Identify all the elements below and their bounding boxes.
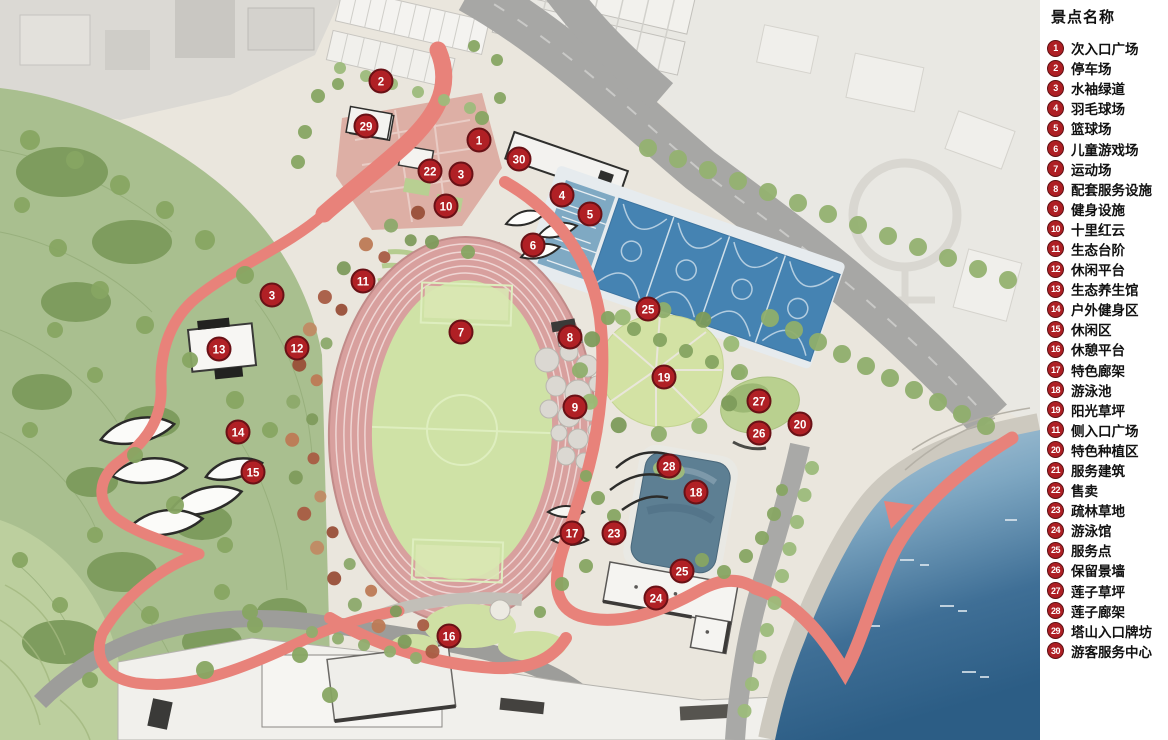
- map-marker-3: 3: [261, 284, 284, 307]
- map-marker-22: 22: [419, 160, 442, 183]
- legend-item: 18 游泳池: [1047, 380, 1167, 400]
- legend-item: 4 羽毛球场: [1047, 98, 1167, 118]
- legend-item-number: 4: [1047, 100, 1064, 117]
- legend-item-number: 17: [1047, 361, 1064, 378]
- legend-item-label: 莲子廊架: [1071, 601, 1125, 621]
- legend-item-number: 16: [1047, 341, 1064, 358]
- legend-item-label: 生态养生馆: [1071, 279, 1139, 299]
- svg-text:12: 12: [291, 343, 304, 355]
- svg-text:23: 23: [608, 528, 621, 540]
- svg-text:4: 4: [559, 190, 566, 202]
- legend-item-number: 24: [1047, 522, 1064, 539]
- legend-item: 28 莲子廊架: [1047, 601, 1167, 621]
- svg-text:10: 10: [440, 201, 453, 213]
- legend-item-number: 10: [1047, 220, 1064, 237]
- svg-text:1: 1: [476, 135, 483, 147]
- legend-item-label: 特色廊架: [1071, 360, 1125, 380]
- legend-item-label: 水袖绿道: [1071, 78, 1125, 98]
- map-marker-11: 11: [352, 270, 375, 293]
- legend-item-number: 1: [1047, 40, 1064, 57]
- svg-text:8: 8: [567, 332, 574, 344]
- svg-text:3: 3: [269, 290, 275, 302]
- legend-item-label: 休闲区: [1071, 319, 1112, 339]
- legend-item-label: 羽毛球场: [1071, 98, 1125, 118]
- svg-text:9: 9: [572, 402, 578, 414]
- legend-item-label: 篮球场: [1071, 118, 1112, 138]
- legend-item: 9 健身设施: [1047, 199, 1167, 219]
- legend-item: 11 侧入口广场: [1047, 420, 1167, 440]
- legend-item-number: 23: [1047, 502, 1064, 519]
- legend-item-number: 15: [1047, 321, 1064, 338]
- map-marker-25: 25: [671, 560, 694, 583]
- map-marker-24: 24: [645, 587, 668, 610]
- legend-item-label: 阳光草坪: [1071, 400, 1125, 420]
- legend-item-label: 休闲平台: [1071, 259, 1125, 279]
- map-marker-28: 28: [658, 455, 681, 478]
- legend-item: 8 配套服务设施: [1047, 179, 1167, 199]
- legend-item: 1 次入口广场: [1047, 38, 1167, 58]
- legend-item-number: 19: [1047, 401, 1064, 418]
- legend-item-label: 塔山入口牌坊: [1071, 621, 1152, 641]
- legend-item-label: 配套服务设施: [1071, 179, 1152, 199]
- legend-title: 景点名称: [1051, 6, 1167, 27]
- legend-item-number: 2: [1047, 60, 1064, 77]
- svg-text:28: 28: [663, 461, 676, 473]
- legend-item: 25 服务点: [1047, 540, 1167, 560]
- svg-text:3: 3: [458, 169, 464, 181]
- legend-item: 2 停车场: [1047, 58, 1167, 78]
- svg-text:25: 25: [642, 304, 655, 316]
- legend-item-number: 8: [1047, 180, 1064, 197]
- map-marker-25: 25: [637, 298, 660, 321]
- svg-text:18: 18: [690, 487, 703, 499]
- svg-text:17: 17: [566, 528, 579, 540]
- svg-text:14: 14: [232, 427, 245, 439]
- map-marker-1: 1: [468, 129, 491, 152]
- legend-item-number: 22: [1047, 482, 1064, 499]
- legend-item-number: 21: [1047, 462, 1064, 479]
- masterplan-map: 2291302234105611325781213192792014262815…: [0, 0, 1040, 740]
- legend-item-number: 26: [1047, 562, 1064, 579]
- map-marker-14: 14: [227, 421, 250, 444]
- map-marker-4: 4: [551, 184, 574, 207]
- legend-item-label: 运动场: [1071, 159, 1112, 179]
- svg-text:15: 15: [247, 467, 260, 479]
- map-marker-17: 17: [561, 522, 584, 545]
- map-marker-19: 19: [653, 366, 676, 389]
- legend-item-number: 3: [1047, 80, 1064, 97]
- legend-item-label: 莲子草坪: [1071, 581, 1125, 601]
- legend-item: 29 塔山入口牌坊: [1047, 621, 1167, 641]
- legend-item: 27 莲子草坪: [1047, 581, 1167, 601]
- legend-item: 11 生态台阶: [1047, 239, 1167, 259]
- masterplan-page: 2291302234105611325781213192792014262815…: [0, 0, 1168, 740]
- svg-text:13: 13: [213, 344, 226, 356]
- legend-item: 5 篮球场: [1047, 118, 1167, 138]
- legend-item: 20 特色种植区: [1047, 440, 1167, 460]
- legend-item: 13 生态养生馆: [1047, 279, 1167, 299]
- legend-item-label: 次入口广场: [1071, 38, 1139, 58]
- legend-item-label: 儿童游戏场: [1071, 139, 1139, 159]
- svg-text:6: 6: [530, 240, 536, 252]
- legend-item-label: 售卖: [1071, 480, 1098, 500]
- legend-item-label: 游泳馆: [1071, 520, 1112, 540]
- legend-item: 22 售卖: [1047, 480, 1167, 500]
- legend-item-label: 游泳池: [1071, 380, 1112, 400]
- legend-item-label: 健身设施: [1071, 199, 1125, 219]
- legend-item-label: 保留景墙: [1071, 560, 1125, 580]
- map-marker-7: 7: [450, 321, 473, 344]
- svg-text:19: 19: [658, 372, 671, 384]
- legend-item-label: 服务建筑: [1071, 460, 1125, 480]
- legend-item-number: 27: [1047, 582, 1064, 599]
- legend-item-number: 30: [1047, 642, 1064, 659]
- legend-list: 1 次入口广场 2 停车场 3 水袖绿道 4 羽毛球场 5 篮球场 6 儿童游戏…: [1047, 38, 1167, 661]
- svg-text:25: 25: [676, 566, 689, 578]
- map-marker-8: 8: [559, 326, 582, 349]
- legend-item-label: 特色种植区: [1071, 440, 1139, 460]
- map-marker-13: 13: [208, 338, 231, 361]
- legend-item-number: 6: [1047, 140, 1064, 157]
- map-marker-18: 18: [685, 481, 708, 504]
- map-marker-27: 27: [748, 390, 771, 413]
- legend-item: 26 保留景墙: [1047, 560, 1167, 580]
- legend-item-number: 11: [1047, 240, 1064, 257]
- legend-item-number: 13: [1047, 281, 1064, 298]
- legend-item: 10 十里红云: [1047, 219, 1167, 239]
- svg-text:29: 29: [360, 121, 373, 133]
- legend-item-label: 十里红云: [1071, 219, 1125, 239]
- legend-item: 12 休闲平台: [1047, 259, 1167, 279]
- legend-item: 21 服务建筑: [1047, 460, 1167, 480]
- svg-text:20: 20: [794, 419, 807, 431]
- legend-item-number: 5: [1047, 120, 1064, 137]
- map-marker-9: 9: [564, 396, 587, 419]
- legend-item: 24 游泳馆: [1047, 520, 1167, 540]
- svg-text:11: 11: [357, 276, 370, 288]
- svg-text:24: 24: [650, 593, 663, 605]
- legend-item: 17 特色廊架: [1047, 360, 1167, 380]
- legend-item: 15 休闲区: [1047, 319, 1167, 339]
- svg-text:30: 30: [513, 154, 526, 166]
- legend-item-number: 20: [1047, 441, 1064, 458]
- legend-item-number: 11: [1047, 421, 1064, 438]
- map-marker-12: 12: [286, 337, 309, 360]
- legend-panel: 景点名称 1 次入口广场 2 停车场 3 水袖绿道 4 羽毛球场 5 篮球场 6…: [1047, 4, 1167, 661]
- map-marker-26: 26: [748, 422, 771, 445]
- map-marker-30: 30: [508, 148, 531, 171]
- map-marker-2: 2: [370, 70, 393, 93]
- legend-item-number: 18: [1047, 381, 1064, 398]
- svg-text:27: 27: [753, 396, 766, 408]
- legend-item-label: 休憩平台: [1071, 339, 1125, 359]
- svg-text:22: 22: [424, 166, 437, 178]
- map-marker-16: 16: [438, 625, 461, 648]
- legend-item-label: 侧入口广场: [1071, 420, 1139, 440]
- legend-item: 30 游客服务中心: [1047, 641, 1167, 661]
- legend-item: 16 休憩平台: [1047, 339, 1167, 359]
- legend-item-number: 7: [1047, 160, 1064, 177]
- legend-item-number: 14: [1047, 301, 1064, 318]
- legend-item-number: 28: [1047, 602, 1064, 619]
- svg-text:16: 16: [443, 631, 456, 643]
- map-marker-10: 10: [435, 195, 458, 218]
- map-marker-5: 5: [579, 203, 602, 226]
- legend-item-number: 12: [1047, 261, 1064, 278]
- legend-item: 23 疏林草地: [1047, 500, 1167, 520]
- legend-item-label: 疏林草地: [1071, 500, 1125, 520]
- map-marker-29: 29: [355, 115, 378, 138]
- legend-item-number: 9: [1047, 200, 1064, 217]
- map-marker-20: 20: [789, 413, 812, 436]
- legend-item-number: 25: [1047, 542, 1064, 559]
- legend-item-number: 29: [1047, 622, 1064, 639]
- legend-item-label: 停车场: [1071, 58, 1112, 78]
- legend-item: 7 运动场: [1047, 159, 1167, 179]
- legend-item: 14 户外健身区: [1047, 299, 1167, 319]
- map-marker-23: 23: [603, 522, 626, 545]
- svg-text:2: 2: [378, 76, 384, 88]
- legend-item-label: 户外健身区: [1071, 299, 1139, 319]
- svg-text:26: 26: [753, 428, 766, 440]
- map-marker-3: 3: [450, 163, 473, 186]
- legend-item: 3 水袖绿道: [1047, 78, 1167, 98]
- legend-item: 19 阳光草坪: [1047, 400, 1167, 420]
- legend-item: 6 儿童游戏场: [1047, 138, 1167, 158]
- legend-item-label: 服务点: [1071, 540, 1112, 560]
- legend-item-label: 生态台阶: [1071, 239, 1125, 259]
- svg-text:7: 7: [458, 327, 464, 339]
- map-marker-15: 15: [242, 461, 265, 484]
- map-marker-6: 6: [522, 234, 545, 257]
- svg-text:5: 5: [587, 209, 594, 221]
- legend-item-label: 游客服务中心: [1071, 641, 1152, 661]
